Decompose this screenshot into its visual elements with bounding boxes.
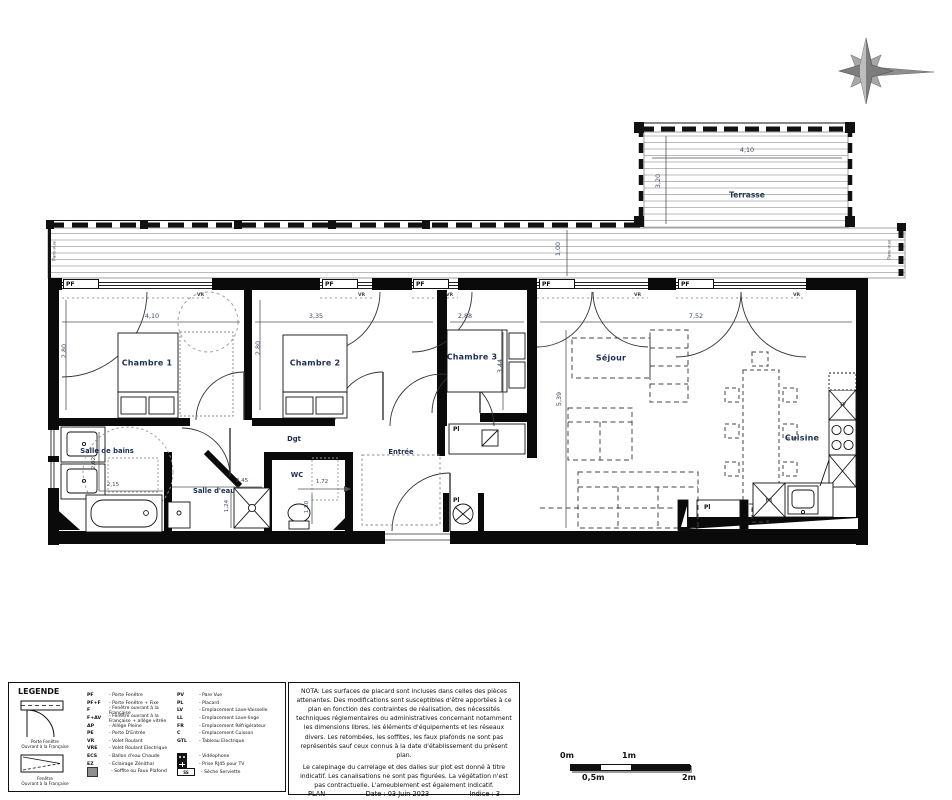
legend-item-label: - Porte D'Entrée bbox=[109, 731, 145, 736]
scale-1m: 1m bbox=[622, 751, 636, 760]
legend-item-abbr: PF bbox=[87, 693, 109, 698]
legend-item-abbr: LL bbox=[177, 716, 199, 721]
dim-wc-width: 1,72 bbox=[316, 479, 328, 485]
window-tag-pf-2: PF bbox=[322, 279, 358, 289]
legend-column-right: PV - Pare Vue PL - Placard LV - Emplacem… bbox=[177, 692, 285, 776]
legend-item-label: - Emplacement Cuisson bbox=[199, 731, 253, 736]
scale-0m: 0m bbox=[560, 751, 574, 760]
compass-north-icon bbox=[839, 38, 934, 104]
balcony bbox=[46, 220, 906, 278]
legend-item: SS - Sèche Serviette bbox=[177, 768, 285, 776]
terrace-label: Terrasse bbox=[729, 191, 765, 200]
legend-item-abbr: FR bbox=[177, 724, 199, 729]
legend-item: EZ - Eclairage Zénithal bbox=[87, 760, 177, 768]
legend-item-label: - Volet Roulant Electrique bbox=[109, 746, 167, 751]
legend-item: FR - Emplacement Réfrigérateur bbox=[177, 722, 285, 730]
window-tag-pf-4: PF bbox=[539, 279, 575, 289]
dim-sejour-height: 5,39 bbox=[555, 392, 563, 406]
door-window-symbol-icon bbox=[19, 699, 69, 739]
dim-terrace-depth: 3,20 bbox=[654, 174, 662, 188]
room-label-chambre1: Chambre 1 bbox=[122, 359, 173, 368]
water-heater-icon bbox=[482, 430, 498, 446]
shutter-tag-vr-5: VR bbox=[793, 293, 800, 298]
legend-item: GTL - Tableau Electrique bbox=[177, 738, 285, 746]
room-label-cuisine: Cuisine bbox=[785, 434, 819, 443]
dim-chambre1-width: 4,10 bbox=[145, 312, 159, 320]
shutter-tag-vr-2: VR bbox=[358, 293, 365, 298]
legend-item: - Soffite ou Faux Plafond bbox=[87, 768, 177, 776]
legend-column-left: PF - Porte Fenêtre PF+F - Porte Fenêtre … bbox=[87, 692, 177, 776]
dim-sde-height: 1,24 bbox=[224, 500, 230, 512]
placard-tag-3: Pl bbox=[704, 504, 710, 511]
legend-item-abbr: PE bbox=[87, 731, 109, 736]
legend-item: LV - Emplacement Lave-Vaisselle bbox=[177, 707, 285, 715]
legend-item-abbr: PF+F bbox=[87, 701, 109, 706]
legend-item-label: - Volet Roulant bbox=[109, 739, 143, 744]
placard-tag-2: Pl bbox=[453, 497, 459, 504]
scale-2m: 2m bbox=[682, 773, 696, 782]
legend-item-abbr: AP bbox=[87, 724, 109, 729]
nota-paragraph-2: Le calepinage du carrelage et des dalles… bbox=[296, 763, 512, 790]
nota-paragraph-1: NOTA: Les surfaces de placard sont inclu… bbox=[296, 687, 512, 760]
room-label-salle-d-eau: Salle d'eau bbox=[193, 487, 235, 495]
legend-item-label: - Sèche Serviette bbox=[201, 770, 240, 775]
dim-terrace-width: 4,10 bbox=[740, 146, 754, 154]
legend-item-label: - Emplacement Lave-linge bbox=[199, 716, 259, 721]
legend-item-abbr: PV bbox=[177, 693, 199, 698]
scale-bar: 0m 1m 0,5m 2m bbox=[552, 748, 712, 788]
room-label-wc: WC bbox=[291, 471, 304, 479]
bathtub-icon bbox=[86, 495, 162, 532]
window-tag-pf-5: PF bbox=[678, 279, 714, 289]
placard-tag-1: Pl bbox=[453, 426, 459, 433]
washbasin-icon bbox=[168, 502, 190, 528]
shutter-tag-vr-3: VR bbox=[446, 293, 453, 298]
window-symbol-icon bbox=[19, 753, 69, 775]
legend-item-label: - Emplacement Réfrigérateur bbox=[199, 724, 266, 729]
legend-item-abbr: F+AV bbox=[87, 716, 109, 721]
pare-vue-label-right: Pare-vue bbox=[888, 240, 893, 260]
vanity-icon bbox=[61, 427, 105, 499]
legend-item: LL - Emplacement Lave-linge bbox=[177, 715, 285, 723]
legend-item-label: - Ballon d'eau Chaude bbox=[109, 754, 160, 759]
legend-item: VRE - Volet Roulant Electrique bbox=[87, 745, 177, 753]
dim-sdb-height: 2,02 bbox=[91, 457, 97, 469]
entree-mat-zone bbox=[362, 455, 440, 525]
legend-item-abbr: F bbox=[87, 708, 109, 713]
legend-item-abbr: ECS bbox=[87, 754, 109, 759]
dim-balcony-depth: 1,00 bbox=[554, 242, 562, 256]
legend-door-caption2: Ouvrant à la Française bbox=[15, 744, 75, 749]
legend-item-abbr: C bbox=[177, 731, 199, 736]
legend-item-label: - Tableau Electrique bbox=[199, 739, 244, 744]
legend-item: PF - Porte Fenêtre bbox=[87, 692, 177, 700]
floorplan-drawing bbox=[0, 0, 952, 675]
legend-item-label: - Allège Pleine bbox=[109, 724, 142, 729]
shutter-tag-vr-4: VR bbox=[634, 293, 641, 298]
bed-icon-chambre2 bbox=[283, 335, 347, 418]
legend-item-label: - Placard bbox=[199, 701, 219, 706]
window-tag-pf-3: PF bbox=[413, 279, 449, 289]
legend-item-label: - Fenêtre ouvrant à la Française + allèg… bbox=[109, 714, 177, 724]
legend-item-abbr bbox=[87, 767, 98, 777]
dishwasher-tag-lv: LV bbox=[840, 403, 846, 408]
legend-item: ECS - Ballon d'eau Chaude bbox=[87, 753, 177, 761]
legend-item: - Vidéophone bbox=[177, 753, 285, 761]
legend-window-caption2: Ouvrant à la Française bbox=[15, 781, 75, 786]
plan-label: PLAN bbox=[308, 790, 325, 798]
dim-sdb-width: 2,15 bbox=[107, 482, 119, 488]
legend-item-label: - Porte Fenêtre bbox=[109, 693, 143, 698]
legend-item: VR - Volet Roulant bbox=[87, 738, 177, 746]
legend-item-label: - Emplacement Lave-Vaisselle bbox=[199, 708, 268, 713]
shower-icon bbox=[234, 488, 270, 528]
pare-vue-label-left: Pare-vue bbox=[53, 241, 58, 261]
title-block: PLAN Date : 03 Juin 2023 Indice : 3 bbox=[296, 790, 512, 798]
plan-date: Date : 03 Juin 2023 bbox=[366, 790, 430, 798]
legend-item-label: - Vidéophone bbox=[199, 754, 229, 759]
room-label-sejour: Séjour bbox=[596, 354, 626, 363]
room-label-chambre2: Chambre 2 bbox=[290, 359, 341, 368]
dim-sde-width: 2,45 bbox=[236, 478, 248, 484]
legend-item-abbr: PL bbox=[177, 701, 199, 706]
legend-item-label: - Soffite ou Faux Plafond bbox=[111, 769, 167, 774]
legend-item: PE - Porte D'Entrée bbox=[87, 730, 177, 738]
dim-chambre2-height: 2,80 bbox=[254, 341, 262, 355]
bed-icon-chambre1 bbox=[118, 333, 178, 418]
furniture bbox=[61, 292, 856, 532]
kitchen-counter-bottom bbox=[753, 460, 833, 517]
dim-chambre3-width: 2,88 bbox=[458, 312, 472, 320]
legend-item: C - Emplacement Cuisson bbox=[177, 730, 285, 738]
terrace bbox=[634, 122, 855, 228]
dim-wc-height: 1,50 bbox=[304, 501, 310, 513]
room-label-chambre3: Chambre 3 bbox=[447, 353, 498, 362]
legend-item-label: - Eclairage Zénithal bbox=[109, 762, 154, 767]
legend-item: F+AV - Fenêtre ouvrant à la Française + … bbox=[87, 715, 177, 723]
legend-panel: LEGENDE Porte Fenêtre Ouvrant à la Franç… bbox=[8, 682, 286, 792]
shutter-tag-vr-1: VR bbox=[197, 293, 204, 298]
ventilation-icon bbox=[453, 504, 473, 524]
legend-item-label: - Prise RJ45 pour TV bbox=[199, 762, 244, 767]
dim-chambre3-height: 3,44 bbox=[496, 359, 504, 373]
scale-05m: 0,5m bbox=[582, 773, 605, 782]
room-label-salle-de-bains: Salle de bains bbox=[80, 447, 134, 455]
floorplan-canvas: Terrasse 4,10 3,20 1,00 Pare-vue Pare-vu… bbox=[0, 0, 952, 800]
legend-item-abbr: VR bbox=[87, 739, 109, 744]
legend-item-label: - Pare Vue bbox=[199, 693, 222, 698]
sink-icon bbox=[788, 486, 818, 514]
legend-item: PV - Pare Vue bbox=[177, 692, 285, 700]
window-tag-pf-1: PF bbox=[63, 279, 99, 289]
nota-panel: NOTA: Les surfaces de placard sont inclu… bbox=[288, 682, 520, 795]
room-label-degagement: Dgt bbox=[287, 435, 301, 443]
fridge-tag-fr: FR bbox=[766, 499, 773, 504]
legend-item: PL - Placard bbox=[177, 700, 285, 708]
legend-title: LEGENDE bbox=[18, 687, 59, 696]
dim-chambre1-height: 2,80 bbox=[60, 344, 68, 358]
dim-sejour-width: 7,52 bbox=[689, 312, 703, 320]
scale-bar-graphic bbox=[570, 764, 690, 771]
plan-indice: Indice : 3 bbox=[470, 790, 500, 798]
legend-item-abbr: LV bbox=[177, 708, 199, 713]
legend-item-abbr: SS bbox=[177, 768, 195, 776]
kitchen-counter-right bbox=[829, 373, 856, 487]
dim-chambre2-width: 3,35 bbox=[309, 312, 323, 320]
legend-item-abbr: VRE bbox=[87, 746, 109, 751]
room-label-entree: Entrée bbox=[388, 448, 413, 456]
legend-item-abbr: GTL bbox=[177, 739, 199, 744]
